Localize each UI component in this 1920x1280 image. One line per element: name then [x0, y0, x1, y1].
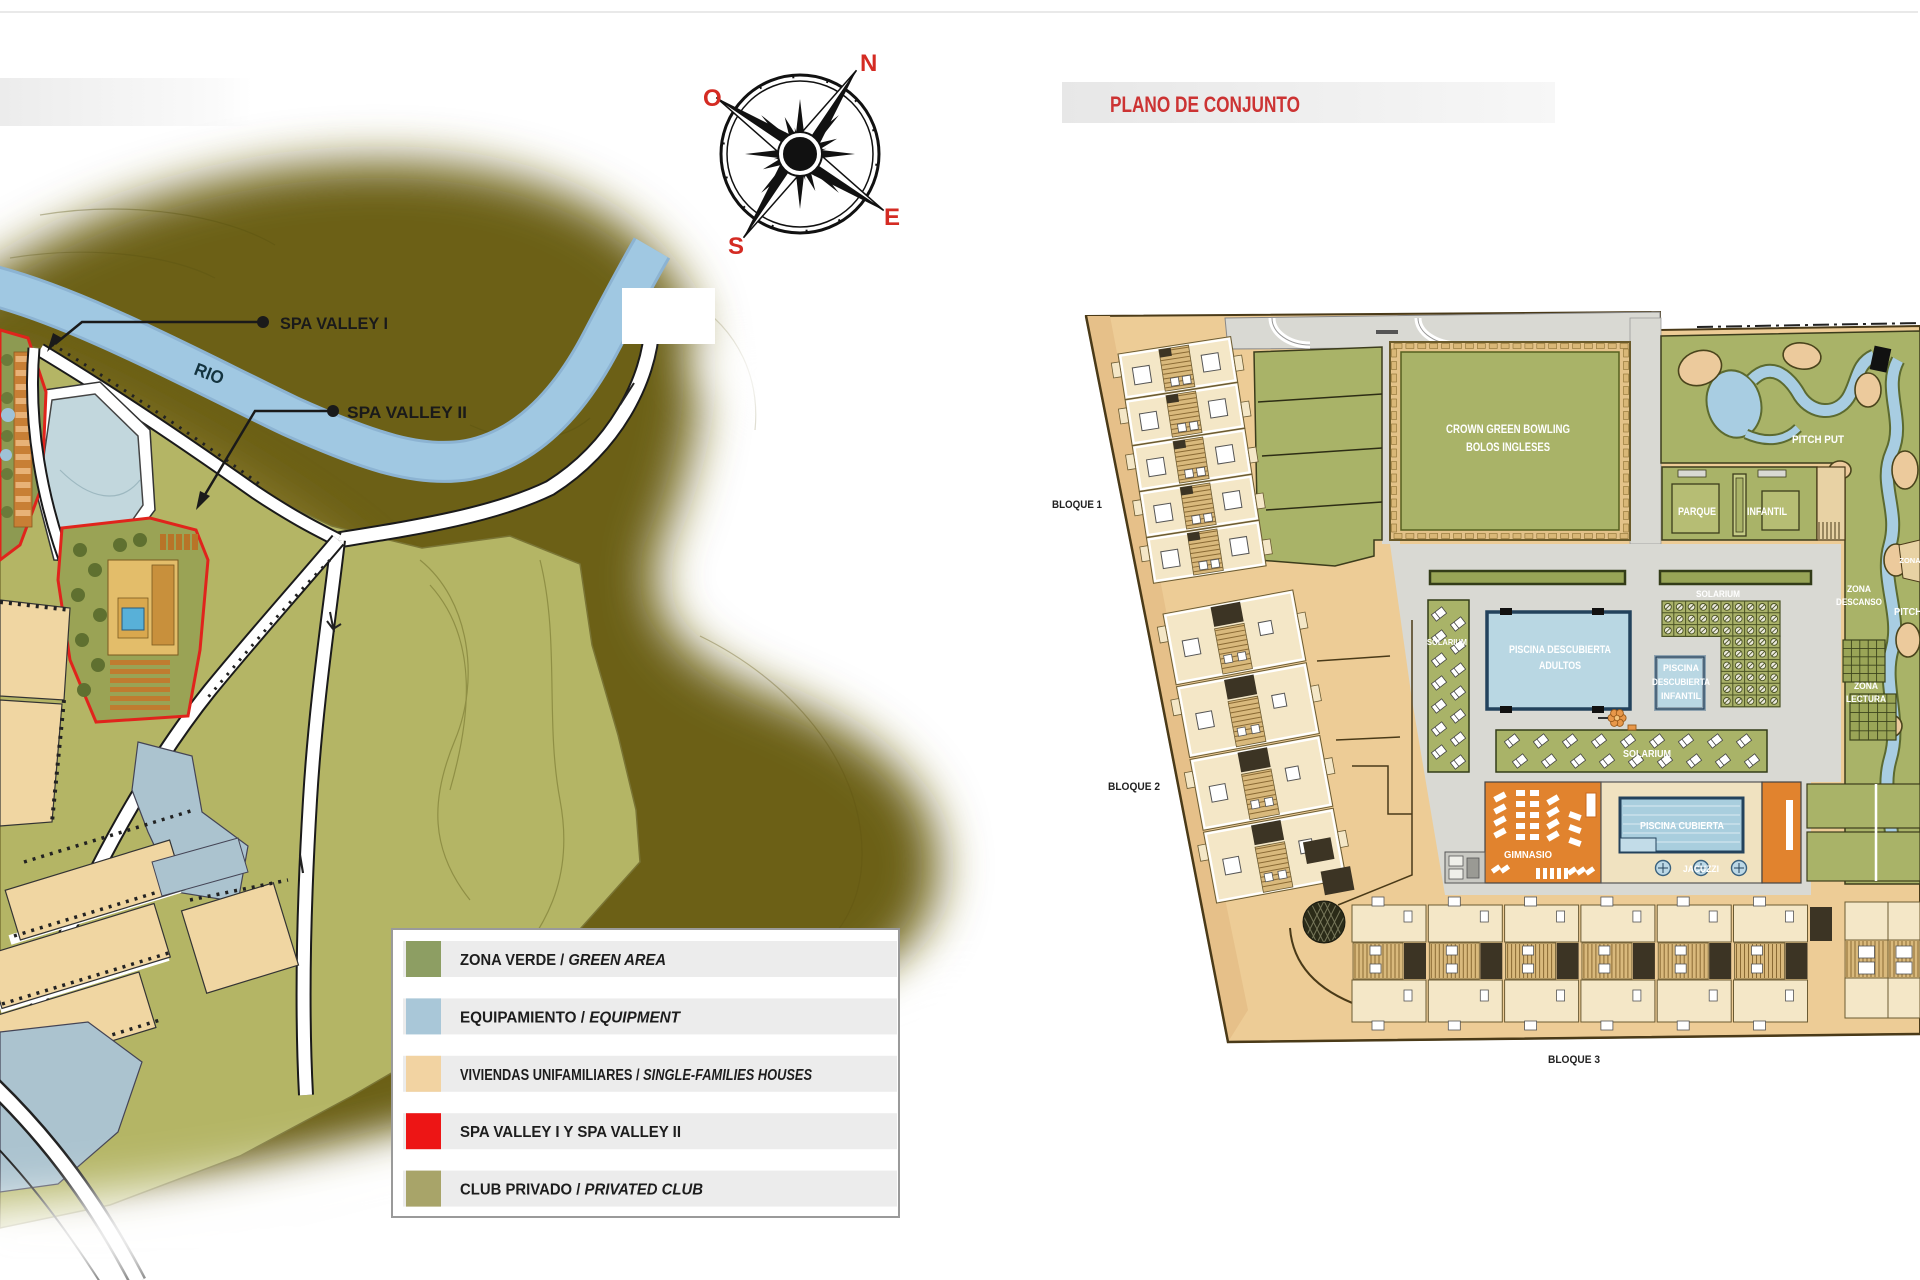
- svg-text:SPA VALLEY II: SPA VALLEY II: [347, 403, 467, 422]
- svg-text:PISCINA CUBIERTA: PISCINA CUBIERTA: [1640, 820, 1724, 832]
- svg-text:PLANO DE CONJUNTO: PLANO DE CONJUNTO: [1110, 92, 1300, 117]
- svg-text:BLOQUE 1: BLOQUE 1: [1052, 499, 1102, 511]
- svg-text:BOLOS INGLESES: BOLOS INGLESES: [1466, 440, 1550, 454]
- svg-text:DESCANSO: DESCANSO: [1836, 597, 1882, 608]
- svg-text:O: O: [703, 85, 722, 112]
- svg-text:PISCINA DESCUBIERTA: PISCINA DESCUBIERTA: [1509, 644, 1611, 656]
- svg-text:DESCUBIERTA: DESCUBIERTA: [1652, 677, 1710, 688]
- svg-text:S: S: [728, 233, 744, 260]
- svg-text:E: E: [884, 204, 900, 231]
- svg-text:ZONA: ZONA: [1899, 556, 1920, 565]
- svg-text:VIVIENDAS UNIFAMILIARES / SING: VIVIENDAS UNIFAMILIARES / SINGLE-FAMILIE…: [460, 1067, 812, 1084]
- svg-text:ZONA: ZONA: [1854, 681, 1878, 692]
- svg-text:EQUIPAMIENTO / EQUIPMENT: EQUIPAMIENTO / EQUIPMENT: [460, 1009, 681, 1026]
- svg-text:SPA VALLEY I: SPA VALLEY I: [280, 314, 388, 333]
- svg-text:JACUZZI: JACUZZI: [1683, 864, 1719, 875]
- svg-text:SPA VALLEY I Y SPA VALLEY II: SPA VALLEY I Y SPA VALLEY II: [460, 1124, 681, 1141]
- svg-text:SOLARIUM: SOLARIUM: [1696, 589, 1740, 599]
- svg-text:PISCINA: PISCINA: [1663, 663, 1699, 674]
- svg-text:PARQUE: PARQUE: [1678, 506, 1716, 518]
- svg-text:ZONA: ZONA: [1847, 584, 1871, 595]
- svg-text:GIMNASIO: GIMNASIO: [1504, 849, 1552, 861]
- svg-text:CROWN GREEN BOWLING: CROWN GREEN BOWLING: [1446, 422, 1570, 436]
- svg-text:CLUB PRIVADO / PRIVATED CLUB: CLUB PRIVADO / PRIVATED CLUB: [460, 1182, 703, 1199]
- svg-text:ADULTOS: ADULTOS: [1539, 660, 1581, 672]
- svg-text:INFANTIL: INFANTIL: [1747, 506, 1787, 518]
- svg-text:LECTURA: LECTURA: [1846, 694, 1886, 705]
- svg-text:SOLARIUM: SOLARIUM: [1427, 637, 1467, 647]
- svg-text:PITCH: PITCH: [1894, 607, 1920, 618]
- svg-text:INFANTIL: INFANTIL: [1661, 691, 1701, 702]
- svg-text:ZONA VERDE / GREEN AREA: ZONA VERDE / GREEN AREA: [460, 952, 666, 969]
- svg-text:PITCH PUT: PITCH PUT: [1792, 434, 1844, 446]
- svg-text:BLOQUE 3: BLOQUE 3: [1548, 1054, 1600, 1066]
- svg-text:N: N: [860, 50, 877, 77]
- svg-text:BLOQUE 2: BLOQUE 2: [1108, 781, 1160, 793]
- svg-text:SOLARIUM: SOLARIUM: [1623, 748, 1671, 760]
